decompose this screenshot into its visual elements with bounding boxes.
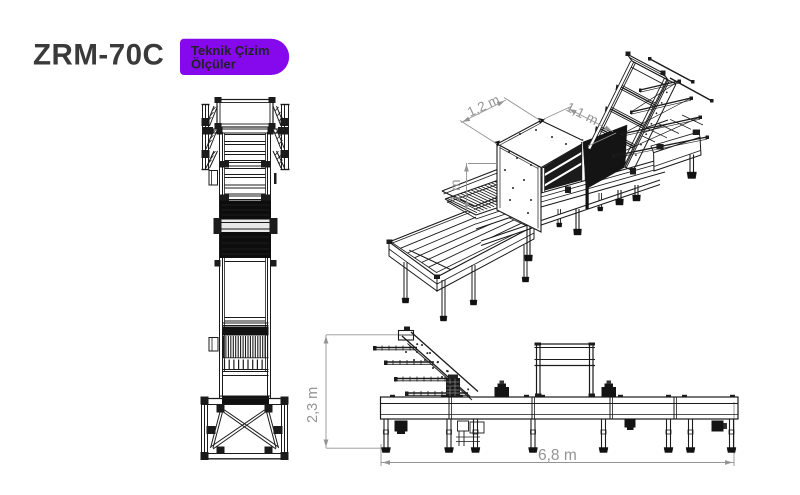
svg-text:6,8 m: 6,8 m <box>538 447 577 464</box>
svg-text:1 m: 1 m <box>448 179 463 202</box>
svg-text:Ölçüler: Ölçüler <box>191 57 236 72</box>
svg-text:2,3 m: 2,3 m <box>305 387 321 423</box>
svg-text:ZRM-70C: ZRM-70C <box>33 39 164 72</box>
